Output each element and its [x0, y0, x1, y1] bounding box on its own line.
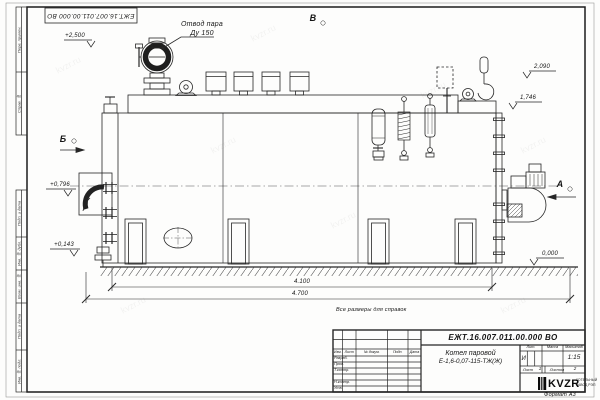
frame-col-inv-podl: Инв. № подл.: [16, 350, 22, 392]
ground-line: [100, 267, 578, 276]
support-feet: [125, 219, 476, 264]
tb-header-list: Лист: [343, 349, 357, 356]
tb-header-podp: Подп.: [388, 349, 409, 356]
manhole: [163, 227, 193, 249]
tb-row-utv: Утв.: [334, 386, 355, 392]
small-top-valve: [104, 97, 117, 113]
level-instruments: [372, 94, 435, 160]
reference-note: Все размеры для справок: [336, 308, 426, 314]
titleblock-product-name-1: Котел паровой: [421, 348, 520, 358]
frame-col-inv-dubl: Инв. № дубл.: [16, 237, 22, 270]
tb-sheets-label: Листов: [546, 366, 568, 373]
tb-row-tkontr: Т.контр.: [334, 368, 355, 374]
front-nozzles: [95, 182, 117, 267]
inverted-doc-number: ЕЖТ.16.007.011.00.000 ВО: [45, 8, 137, 23]
dimension-body-length: 4.100: [282, 279, 322, 285]
elevation-2500: +2,500: [60, 33, 90, 39]
dashed-fitting: [437, 67, 453, 113]
view-marker-v: В: [306, 14, 320, 23]
format-label: Формат А3: [538, 393, 582, 399]
tb-sheet-label: Лист: [521, 366, 535, 373]
drawing-sheet: kvzr.ru kvzr.ru kvzr.ru kvzr.ru kvzr.ru …: [0, 0, 600, 400]
frame-col-podp-data-2: Подп. и дата: [16, 303, 22, 350]
elevation-0000: 0,000: [536, 251, 564, 257]
view-marker-a: А: [553, 180, 567, 189]
elevation-0143: +0,143: [48, 242, 80, 248]
steam-outlet-label-line1: Отвод пара: [176, 21, 228, 28]
dimension-overall-length: 4.700: [280, 291, 320, 297]
steam-outlet-label-line2: Ду 150: [183, 30, 221, 37]
frame-col-podp-data-1: Подп. и дата: [16, 190, 22, 237]
steam-outlet-valve: [136, 38, 174, 95]
tb-header-data: Дата: [408, 349, 421, 356]
view-marker-b: Б: [56, 135, 70, 144]
elevation-2090: 2,090: [528, 64, 556, 70]
tb-lit-value: И: [520, 351, 527, 366]
tb-header-izm: Изм.: [333, 349, 343, 356]
frame-col-sprav-no: Справ. №: [16, 72, 22, 135]
tb-header-dokum: № докум.: [356, 349, 388, 356]
frame-col-perv-primen: Перв. примен.: [16, 7, 22, 72]
tb-sheet-value: 1: [536, 366, 544, 373]
view-arrows: [60, 21, 576, 200]
frame-col-vzam-inv: Взам. инв. №: [16, 270, 22, 303]
tb-mass-label: Масса: [542, 345, 563, 351]
kvzr-logo-caption-2: ЗАВОД РЭП: [576, 384, 595, 388]
elevation-1746: 1,746: [514, 95, 542, 101]
hook-pipe: [478, 57, 494, 100]
tb-scale-value: 1:15: [563, 351, 585, 366]
tb-sheets-value: 2: [570, 366, 580, 373]
elevation-0796: +0,796: [44, 182, 76, 188]
titleblock-doc-number: ЕЖТ.16.007.011.00.000 ВО: [421, 331, 585, 344]
fan-box: [79, 173, 112, 215]
boiler-body: [102, 95, 505, 263]
top-hatch-boxes: [206, 72, 309, 95]
titleblock-product-name-2: Е-1,6-0,07-115-ТЖ(Ж): [421, 358, 520, 367]
burner: [502, 164, 546, 222]
kvzr-logo: KVZR: [548, 378, 580, 390]
elevation-marks: [46, 40, 564, 265]
